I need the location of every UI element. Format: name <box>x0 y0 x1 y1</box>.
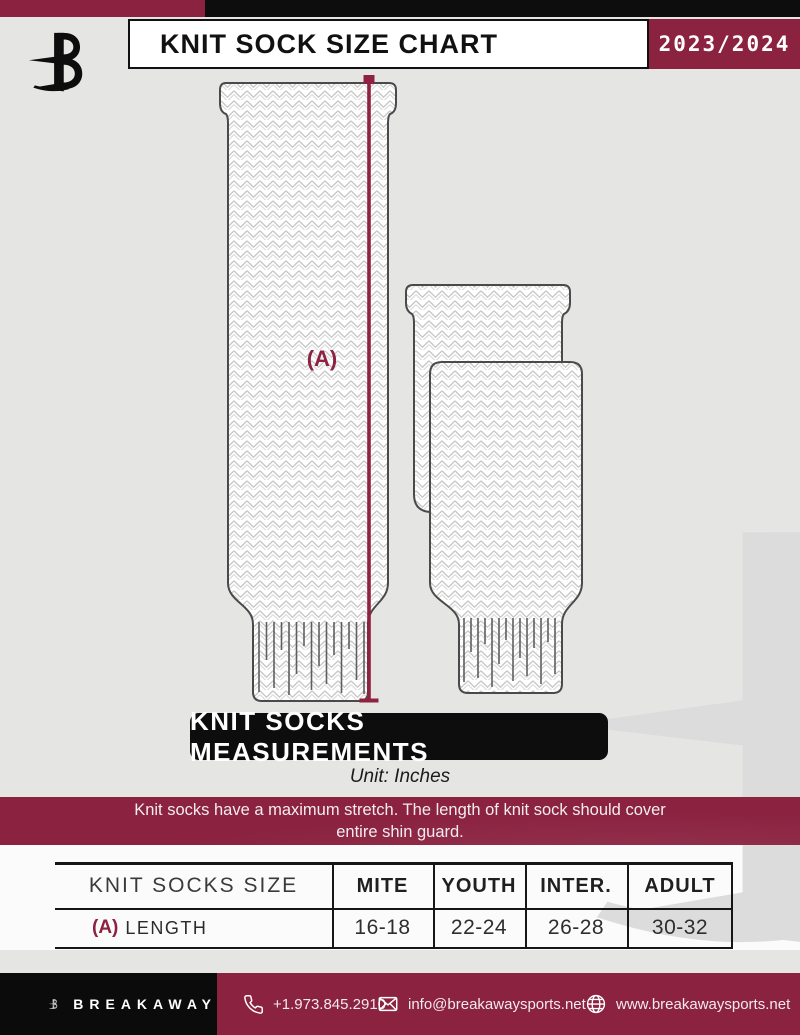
season-box: 2023/2024 <box>649 19 800 69</box>
page-title: KNIT SOCK SIZE CHART <box>160 29 498 60</box>
length-youth: 22-24 <box>433 910 525 947</box>
header-knit-socks-size: KNIT SOCKS SIZE <box>55 865 332 909</box>
size-table: KNIT SOCKS SIZE MITE YOUTH INTER. ADULT … <box>55 862 733 949</box>
top-strip-maroon <box>0 0 205 17</box>
measurements-banner-label: KNIT SOCKS MEASUREMENTS <box>190 706 608 768</box>
knit-sock-size-chart-page: KNIT SOCK SIZE CHART 2023/2024 (A) KNIT … <box>0 0 800 1035</box>
unit-label: Unit: Inches <box>0 766 800 788</box>
footer-phone[interactable]: +1.973.845.2910 <box>243 973 386 1035</box>
season-label: 2023/2024 <box>659 32 791 56</box>
header-mite: MITE <box>332 865 433 909</box>
brand-wordmark: BREAKAWAY <box>73 996 217 1012</box>
length-mite: 16-18 <box>332 910 433 947</box>
envelope-icon <box>377 993 399 1015</box>
footer-phone-text: +1.973.845.2910 <box>273 996 386 1013</box>
table-length-row: (A) LENGTH 16-18 22-24 26-28 30-32 <box>55 910 733 947</box>
header-adult: ADULT <box>627 865 733 909</box>
knit-socks-illustration: (A) <box>0 75 800 715</box>
measurements-banner: KNIT SOCKS MEASUREMENTS <box>190 713 608 760</box>
footer-website[interactable]: www.breakawaysports.net <box>585 973 790 1035</box>
footer-email-text: info@breakawaysports.net <box>408 996 586 1013</box>
footer: BREAKAWAY +1.973.845.2910 <box>0 973 800 1035</box>
header-inter: INTER. <box>525 865 627 909</box>
breakaway-b-logo-footer <box>48 981 60 1027</box>
notice-line-2: entire shin guard. <box>336 821 464 843</box>
stretch-notice-bar: Knit socks have a maximum stretch. The l… <box>0 797 800 845</box>
table-header-row: KNIT SOCKS SIZE MITE YOUTH INTER. ADULT <box>55 865 733 909</box>
footer-email[interactable]: info@breakawaysports.net <box>377 973 586 1035</box>
globe-icon <box>585 993 607 1015</box>
top-strip-black <box>205 0 800 17</box>
measurement-label-a: (A) <box>307 346 338 371</box>
phone-icon <box>243 994 264 1015</box>
table-border-bottom <box>55 947 733 950</box>
notice-line-1: Knit socks have a maximum stretch. The l… <box>134 799 666 821</box>
title-box: KNIT SOCK SIZE CHART <box>128 19 649 69</box>
header-youth: YOUTH <box>433 865 525 909</box>
label-a-prefix: (A) <box>92 917 118 939</box>
length-row-label: (A) LENGTH <box>55 910 332 947</box>
length-adult: 30-32 <box>627 910 733 947</box>
footer-website-text: www.breakawaysports.net <box>616 996 790 1013</box>
sock-front <box>430 362 582 693</box>
footer-brand-block: BREAKAWAY <box>0 973 217 1035</box>
label-length: LENGTH <box>125 918 207 939</box>
footer-contact-block: +1.973.845.2910 info@breakawaysports.net <box>217 973 800 1035</box>
length-inter: 26-28 <box>525 910 627 947</box>
